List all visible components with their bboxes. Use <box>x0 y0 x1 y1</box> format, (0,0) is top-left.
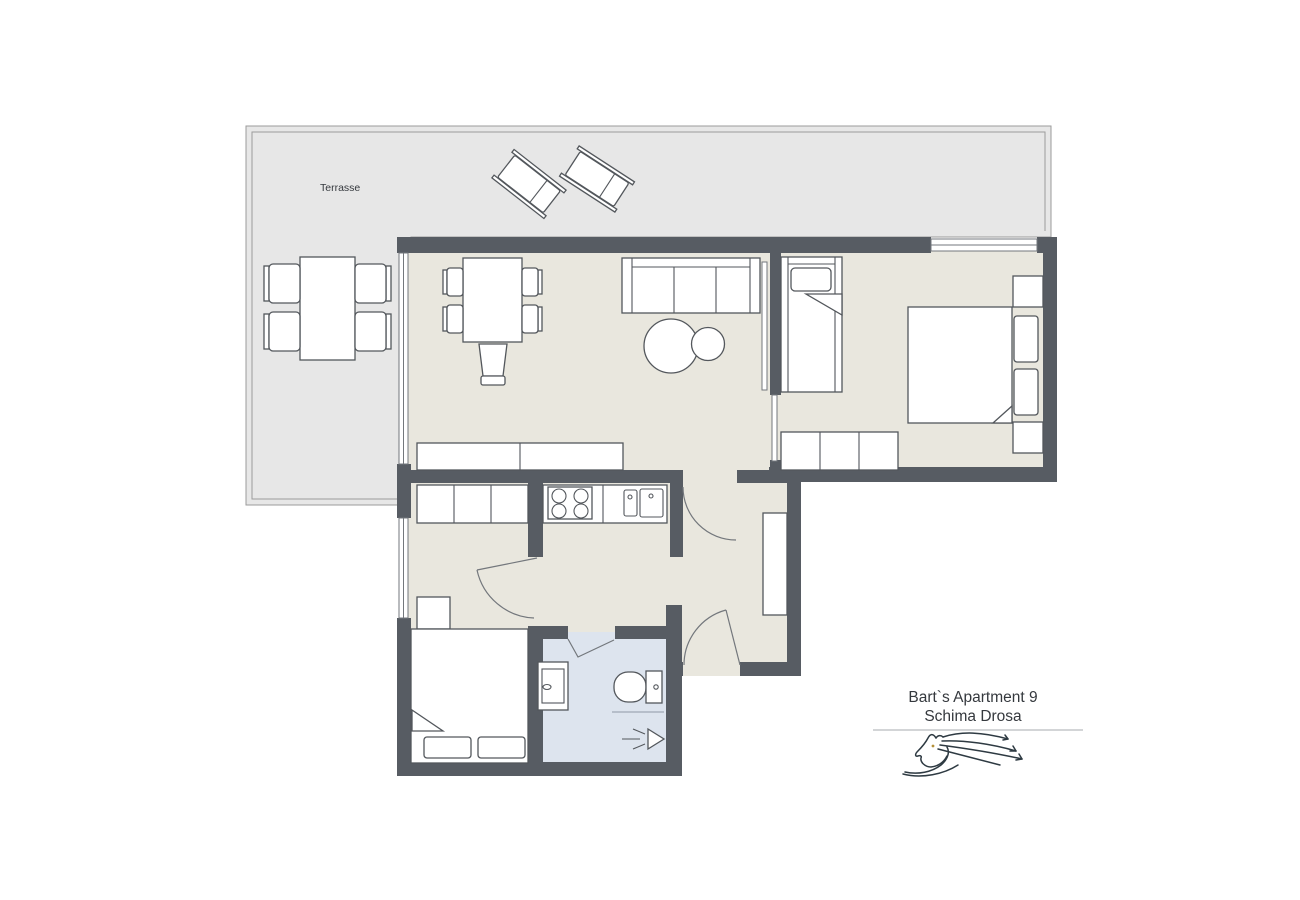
wardrobe <box>781 432 898 470</box>
dining-chair-south <box>479 344 507 385</box>
closet-cabinets <box>417 485 528 523</box>
hallway <box>763 513 787 615</box>
floorplan-canvas: Terrasse <box>0 0 1300 900</box>
pillow <box>1014 316 1038 362</box>
bathroom-sink <box>538 662 568 710</box>
pillow <box>791 268 831 291</box>
coffee-table-small <box>692 328 725 361</box>
terrace-label: Terrasse <box>320 182 360 194</box>
nightstand <box>417 597 450 629</box>
coffee-table-large <box>644 319 698 373</box>
horse-logo <box>903 733 1022 776</box>
floorplan-page: Terrasse <box>0 0 1300 900</box>
apartment-subtitle: Schima Drosa <box>924 708 1022 725</box>
bed <box>411 629 528 763</box>
hall-wardrobe <box>763 513 787 615</box>
pillow <box>478 737 525 758</box>
single-bed <box>781 257 842 392</box>
toilet <box>614 671 662 703</box>
dining-table <box>463 258 522 342</box>
horse-eye <box>932 745 935 748</box>
pillow <box>1014 369 1038 415</box>
kitchen <box>543 485 667 523</box>
sideboard <box>417 443 623 470</box>
bedroom2-window <box>399 518 408 618</box>
pillow <box>424 737 471 758</box>
nightstand <box>1013 422 1043 453</box>
stove <box>548 487 592 519</box>
sofa <box>622 258 760 313</box>
living-room-window <box>399 253 408 464</box>
footer: Bart`s Apartment 9 Schima Drosa <box>873 689 1083 776</box>
terrace-dining-table <box>300 257 355 360</box>
nightstand <box>1013 276 1043 307</box>
bedroom1-window <box>931 239 1037 251</box>
apartment-title: Bart`s Apartment 9 <box>908 689 1037 706</box>
